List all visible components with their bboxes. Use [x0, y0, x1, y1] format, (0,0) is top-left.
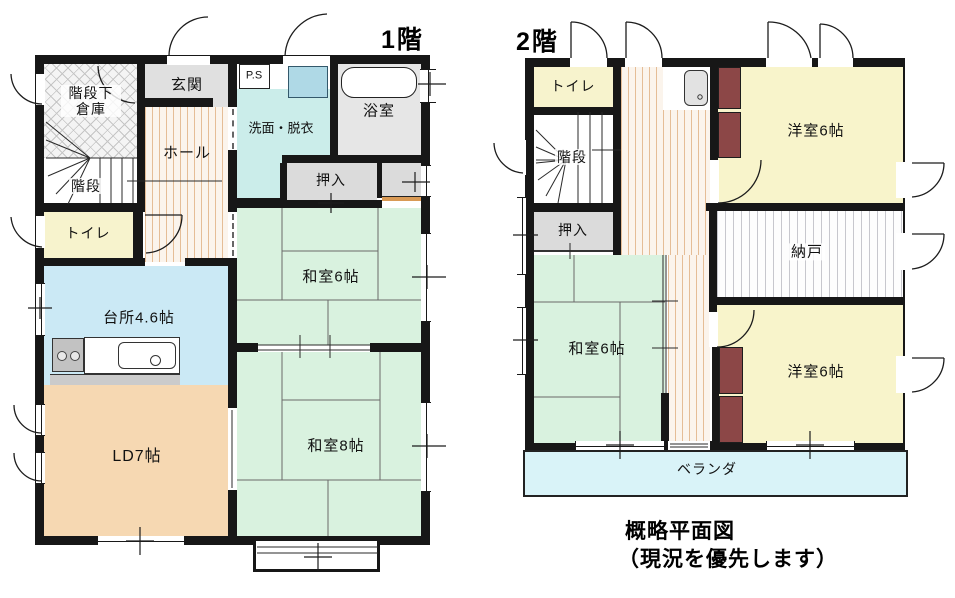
label-veranda: ベランダ — [677, 461, 737, 477]
closet-maroon — [719, 347, 743, 394]
floor1-left-door-gap — [36, 74, 45, 105]
wall — [370, 343, 421, 352]
label-oshiire-f1: 押入 — [316, 172, 346, 188]
bathroom-window — [420, 69, 436, 103]
bathtub-icon — [341, 67, 417, 98]
wall — [237, 200, 382, 208]
western6-bottom-window — [766, 441, 855, 450]
ld-bottom-window — [97, 536, 185, 545]
washstand-icon — [684, 70, 708, 106]
stove-icon — [52, 338, 84, 372]
floor1-side-closet-track — [382, 196, 421, 201]
floor1-back-door-gap — [283, 56, 330, 65]
wall — [712, 347, 719, 443]
wall — [706, 203, 903, 211]
label-washroom: 洗面・脱衣 — [248, 122, 313, 137]
kitchen-sink-drain-icon — [150, 355, 161, 366]
label-washitsu6-f2: 和室6帖 — [568, 340, 625, 357]
wall — [710, 64, 718, 160]
floor1-left-door-gap — [36, 216, 45, 248]
floor2-left-window — [517, 307, 526, 375]
wall — [613, 64, 621, 212]
veranda-door-gap — [668, 441, 710, 450]
floor2-hall-floor — [621, 205, 710, 255]
folding-door-icon — [232, 109, 234, 149]
kitchen-counter-base — [50, 374, 180, 385]
ld-window — [36, 404, 45, 436]
floor2-top-door-gap — [766, 58, 812, 67]
caption-line1: 概略平面図 — [625, 515, 735, 545]
label-hall: ホール — [163, 144, 211, 161]
floor2-right-window-gap — [896, 233, 913, 270]
floor2-right-window-gap — [896, 162, 913, 198]
label-toilet-f2: トイレ — [551, 78, 596, 94]
label-under-stairs-storage: 階段下倉庫 — [61, 85, 121, 117]
stove-burner-icon — [70, 351, 80, 361]
label-oshiire-f2: 押入 — [558, 222, 588, 238]
wall — [330, 64, 338, 157]
wall — [228, 490, 237, 536]
floor1-hall-floor — [145, 107, 228, 262]
bay-window — [253, 541, 380, 572]
western6-bottom-door-gap — [709, 312, 718, 347]
label-stairs-f1: 階段 — [69, 178, 103, 194]
stove-burner-icon — [57, 351, 67, 361]
closet-maroon — [719, 396, 743, 443]
floor2-left-window — [517, 197, 526, 275]
wall — [133, 212, 143, 258]
wall — [145, 98, 213, 107]
floor2-hall-floor — [668, 255, 710, 441]
oshiire-front-line — [534, 250, 613, 252]
wall — [377, 163, 382, 198]
wall — [237, 343, 258, 352]
floor2-left-door-gap — [517, 140, 526, 175]
wall — [228, 266, 237, 408]
wall — [44, 203, 137, 212]
side-closet-window — [421, 165, 431, 197]
label-kitchen: 台所4.6帖 — [103, 309, 175, 326]
washitsu8-window — [421, 402, 431, 492]
label-ps: P.S — [246, 70, 262, 83]
wall — [137, 64, 145, 212]
ld-window — [36, 452, 45, 484]
folding-door-icon — [232, 214, 234, 256]
floor2-top-door-gap — [625, 58, 662, 67]
wall — [534, 107, 621, 115]
label-washitsu6-f1: 和室6帖 — [302, 268, 359, 285]
label-western6-top: 洋室6帖 — [787, 122, 844, 139]
floor2-top-door-gap — [570, 58, 607, 67]
label-nando: 納戸 — [789, 243, 825, 260]
label-stairs-f2: 階段 — [555, 149, 589, 165]
wall — [613, 205, 621, 255]
wall — [185, 258, 237, 266]
kitchen-sink-icon — [118, 342, 176, 369]
washbasin-icon — [288, 66, 328, 98]
wall — [44, 258, 145, 266]
western6-top-door-gap — [710, 160, 719, 203]
label-genkan: 玄関 — [171, 76, 203, 93]
floor2-right-window-gap — [896, 356, 913, 393]
floor1-title: 1階 — [381, 20, 424, 56]
floorplan-canvas: 1階 2階 階段下倉庫 階段 玄関 P.S 洗面・脱衣 浴室 ホール トイレ 押… — [0, 0, 955, 598]
kitchen-window — [36, 283, 45, 336]
label-bathroom: 浴室 — [363, 102, 395, 119]
washitsu6-bottom-window — [575, 441, 665, 450]
floor2-title: 2階 — [516, 22, 559, 58]
label-western6-bottom: 洋室6帖 — [787, 363, 844, 380]
floor2-top-door-gap — [818, 58, 853, 67]
closet-maroon — [718, 112, 741, 158]
wall — [534, 203, 621, 212]
floor1-entrance-door-gap — [167, 56, 210, 65]
floor1-side-closet — [382, 163, 421, 196]
wall — [282, 155, 421, 163]
washitsu6-window — [421, 233, 431, 322]
wall — [228, 64, 237, 107]
label-ld: LD7帖 — [112, 448, 161, 466]
label-washitsu8: 和室8帖 — [307, 437, 364, 454]
caption-line2: （現況を優先します） — [618, 543, 838, 573]
wall — [709, 203, 717, 312]
label-toilet-f1: トイレ — [66, 225, 111, 241]
wall — [710, 297, 903, 305]
closet-maroon — [718, 67, 741, 109]
wall — [661, 393, 669, 443]
